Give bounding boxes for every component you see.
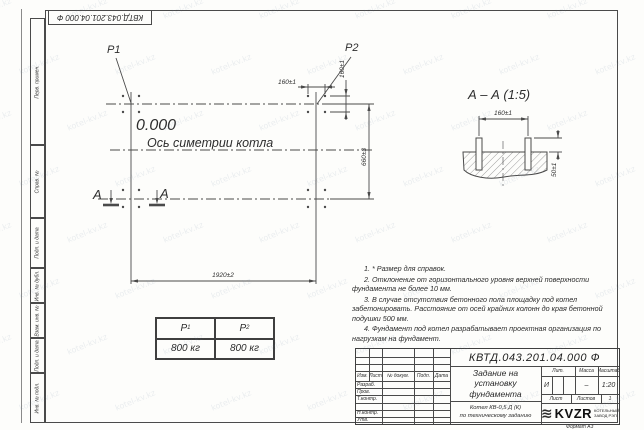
sheets-label: Листов <box>571 394 601 403</box>
sheets-value: 1 <box>601 394 619 403</box>
section-title: А – А (1:5) <box>467 87 530 102</box>
row-nkontr: Н.контр. <box>357 410 382 417</box>
mass-label: Масса <box>575 366 598 376</box>
lit-value: И <box>541 376 552 394</box>
dim-1920: 1920±2 <box>212 272 234 279</box>
col-podp: Подп. <box>414 371 433 381</box>
scale-value: 1:20 <box>598 376 619 394</box>
dim-50-section: 50±1 <box>551 162 558 177</box>
dim-160-horizontal: 160±1 <box>278 79 296 86</box>
plan-view <box>98 57 374 284</box>
kvzr-logo-icon: ≋ <box>541 407 553 421</box>
format-label: Формат А3 <box>566 424 593 430</box>
note-3: 3. В случае отсутствия бетонного пола пл… <box>352 295 619 324</box>
p2-label: P2 <box>345 42 358 54</box>
title-block: Изм. Лист № докум. Подп. Дата Разраб. Пр… <box>355 348 620 425</box>
lit-label: Лит. <box>541 366 575 376</box>
col-dokum: № докум. <box>382 371 414 381</box>
section-letter-1: А <box>92 187 102 202</box>
note-2: 2. Отклонение от горизонтального уровня … <box>352 275 619 294</box>
col-data: Дата <box>433 371 450 381</box>
elevation-label: 0.000 <box>136 117 176 134</box>
dim-160-vertical: 160±1 <box>339 60 346 78</box>
drawing-title: Задание на установку фундамента <box>450 366 541 401</box>
mass-value: – <box>575 376 598 394</box>
drawing-sheet: КВТД.043.201.04.000 Ф Перв. примен. Спра… <box>0 0 644 430</box>
load-table-header-p1: Р1 <box>156 318 215 339</box>
row-tkontr: Т.контр. <box>357 395 382 402</box>
section-view: А – А (1:5) 160±1 50±1 <box>463 87 562 186</box>
anchor-bolt <box>476 138 482 170</box>
col-list: Лист <box>369 371 382 381</box>
p1-label: P1 <box>107 44 120 56</box>
dim-660: 660±3 <box>361 148 368 166</box>
notes: 1. * Размер для справок. 2. Отклонение о… <box>352 264 619 344</box>
load-table-header-p2: Р2 <box>215 318 274 339</box>
logo-caption: КОТЕЛЬНЫЙ ЗАВОД РЭП <box>594 409 619 419</box>
scale-label: Масштаб <box>598 366 619 376</box>
dimension-arrows <box>109 85 559 282</box>
anchor-bolt <box>525 138 531 170</box>
drawing-subtitle: Котел КВ-0,5 Д (К) по техническому задан… <box>450 401 541 424</box>
load-table-value-p2: 800 кг <box>215 339 274 360</box>
sheet-label: Лист <box>541 394 571 403</box>
note-1: 1. * Размер для справок. <box>352 264 619 274</box>
logo: ≋ KVZR КОТЕЛЬНЫЙ ЗАВОД РЭП <box>541 403 619 424</box>
dim-160-section: 160±1 <box>494 110 512 117</box>
doc-number: КВТД.043.201.04.000 Ф <box>450 349 619 366</box>
logo-text: KVZR <box>555 406 592 421</box>
note-4: 4. Фундамент под котел разрабатывает про… <box>352 324 619 343</box>
symmetry-axis-label: Ось симетрии котла <box>147 136 273 150</box>
anchor-points <box>122 95 326 208</box>
row-utv: Утв. <box>357 417 382 424</box>
col-izm: Изм. <box>356 371 369 381</box>
load-table: Р1 Р2 800 кг 800 кг <box>155 317 275 360</box>
section-letter-2: А <box>159 186 169 201</box>
row-prov: Пров. <box>357 388 382 395</box>
load-table-value-p1: 800 кг <box>156 339 215 360</box>
row-razrab: Разраб. <box>357 381 382 388</box>
row-empty <box>357 403 382 410</box>
